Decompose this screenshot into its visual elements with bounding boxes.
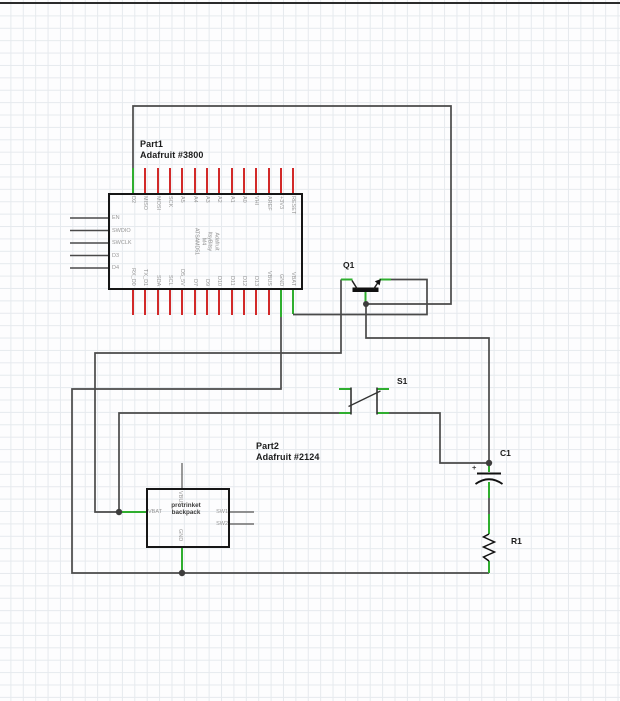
schematic-drawing [0,0,620,701]
pin-label: D3 [112,253,119,259]
transistor-q1-symbol[interactable] [352,279,381,292]
pin-label: VHI [253,196,259,205]
part2-label: Part2 Adafruit #2124 [256,441,319,463]
part2-backpack-body[interactable] [146,488,230,548]
pin-label: RESET [290,196,296,214]
pin-label: GND [278,244,284,286]
pin-label: D12 [241,244,247,286]
pin-label: SW2 [211,521,228,527]
capacitor-plus-mark: + [472,463,476,472]
pin-label: A5 [179,196,185,203]
schematic-canvas[interactable]: Part1 Adafruit #3800 Adafruit ItsyBitsy … [0,0,620,701]
resistor-ref-label: R1 [511,536,522,546]
pin-label: SCL [167,244,173,286]
pin-label: RX_D0 [130,244,136,286]
wire-q1-emitter-to-ic-vbat[interactable] [293,280,427,315]
pin-label: +3V3 [278,196,284,209]
wire-s1-to-c1[interactable] [389,413,489,463]
pin-label: D11 [229,244,235,286]
pin-label: A4 [192,196,198,203]
pin-label: MISO [142,196,148,210]
pin-label: MOSI [155,196,161,210]
capacitor-ref-label: C1 [500,448,511,458]
pin-label: VBAT [148,509,162,515]
pin-label: SWCLK [112,240,132,246]
pin-label: A0 [241,196,247,203]
part1-part-number: Adafruit #3800 [140,150,203,161]
transistor-ref-label: Q1 [343,260,354,270]
ic-left-pin-stubs[interactable] [70,218,108,268]
pin-label: SWDIO [112,228,131,234]
pin-label: EN [112,215,120,221]
pin-label: VBUS [177,491,183,506]
pin-label: A3 [204,196,210,203]
pin-label: D7 [192,244,198,286]
part1-label: Part1 Adafruit #3800 [140,139,203,161]
resistor-r1-symbol[interactable] [484,534,495,561]
pin-label: SW1 [211,509,228,515]
pin-label: A2 [216,196,222,203]
pin-label: VBUS [266,244,272,286]
pin-label: SCK [167,196,173,207]
pin-label: TX_D1 [142,244,148,286]
wire-q1-base-to-c1[interactable] [366,304,489,463]
part2-designator: Part2 [256,441,319,452]
pin-label: D9 [204,244,210,286]
switch-ref-label: S1 [397,376,407,386]
pin-label: VBAT [290,244,296,286]
part2-part-number: Adafruit #2124 [256,452,319,463]
ic-bottom-pin-leads[interactable] [133,290,293,317]
pin-label: D10 [216,244,222,286]
pin-label: D13 [253,244,259,286]
pin-label: GND [177,529,183,541]
pin-label: D2 [130,196,136,203]
pin-label: A1 [229,196,235,203]
pin-label: AREF [266,196,272,211]
switch-s1-symbol[interactable] [349,388,381,415]
part1-designator: Part1 [140,139,203,150]
pin-label: D4 [112,265,119,271]
pin-label: SDA [155,244,161,286]
pin-label: D5_5V [179,244,185,286]
ic-top-pin-leads[interactable] [133,168,293,193]
